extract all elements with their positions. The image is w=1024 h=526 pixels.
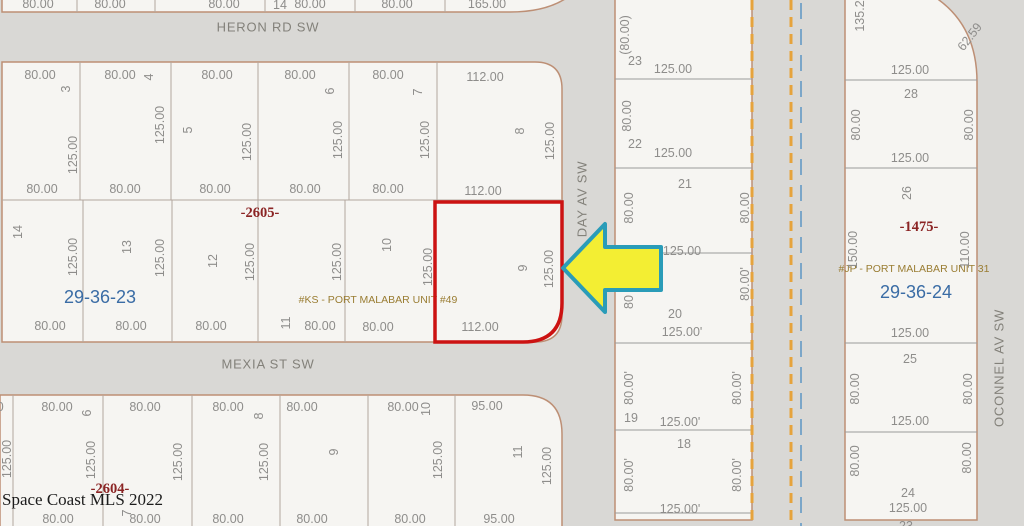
highlighted-lot-outline [435,202,562,342]
plat-map: HERON RD SWMEXIA ST SWDAY AV SWOCONNEL A… [0,0,1024,526]
highlight-arrow [563,224,661,312]
mls-watermark: Space Coast MLS 2022 [2,490,163,510]
map-highlight-layer [0,0,1024,526]
